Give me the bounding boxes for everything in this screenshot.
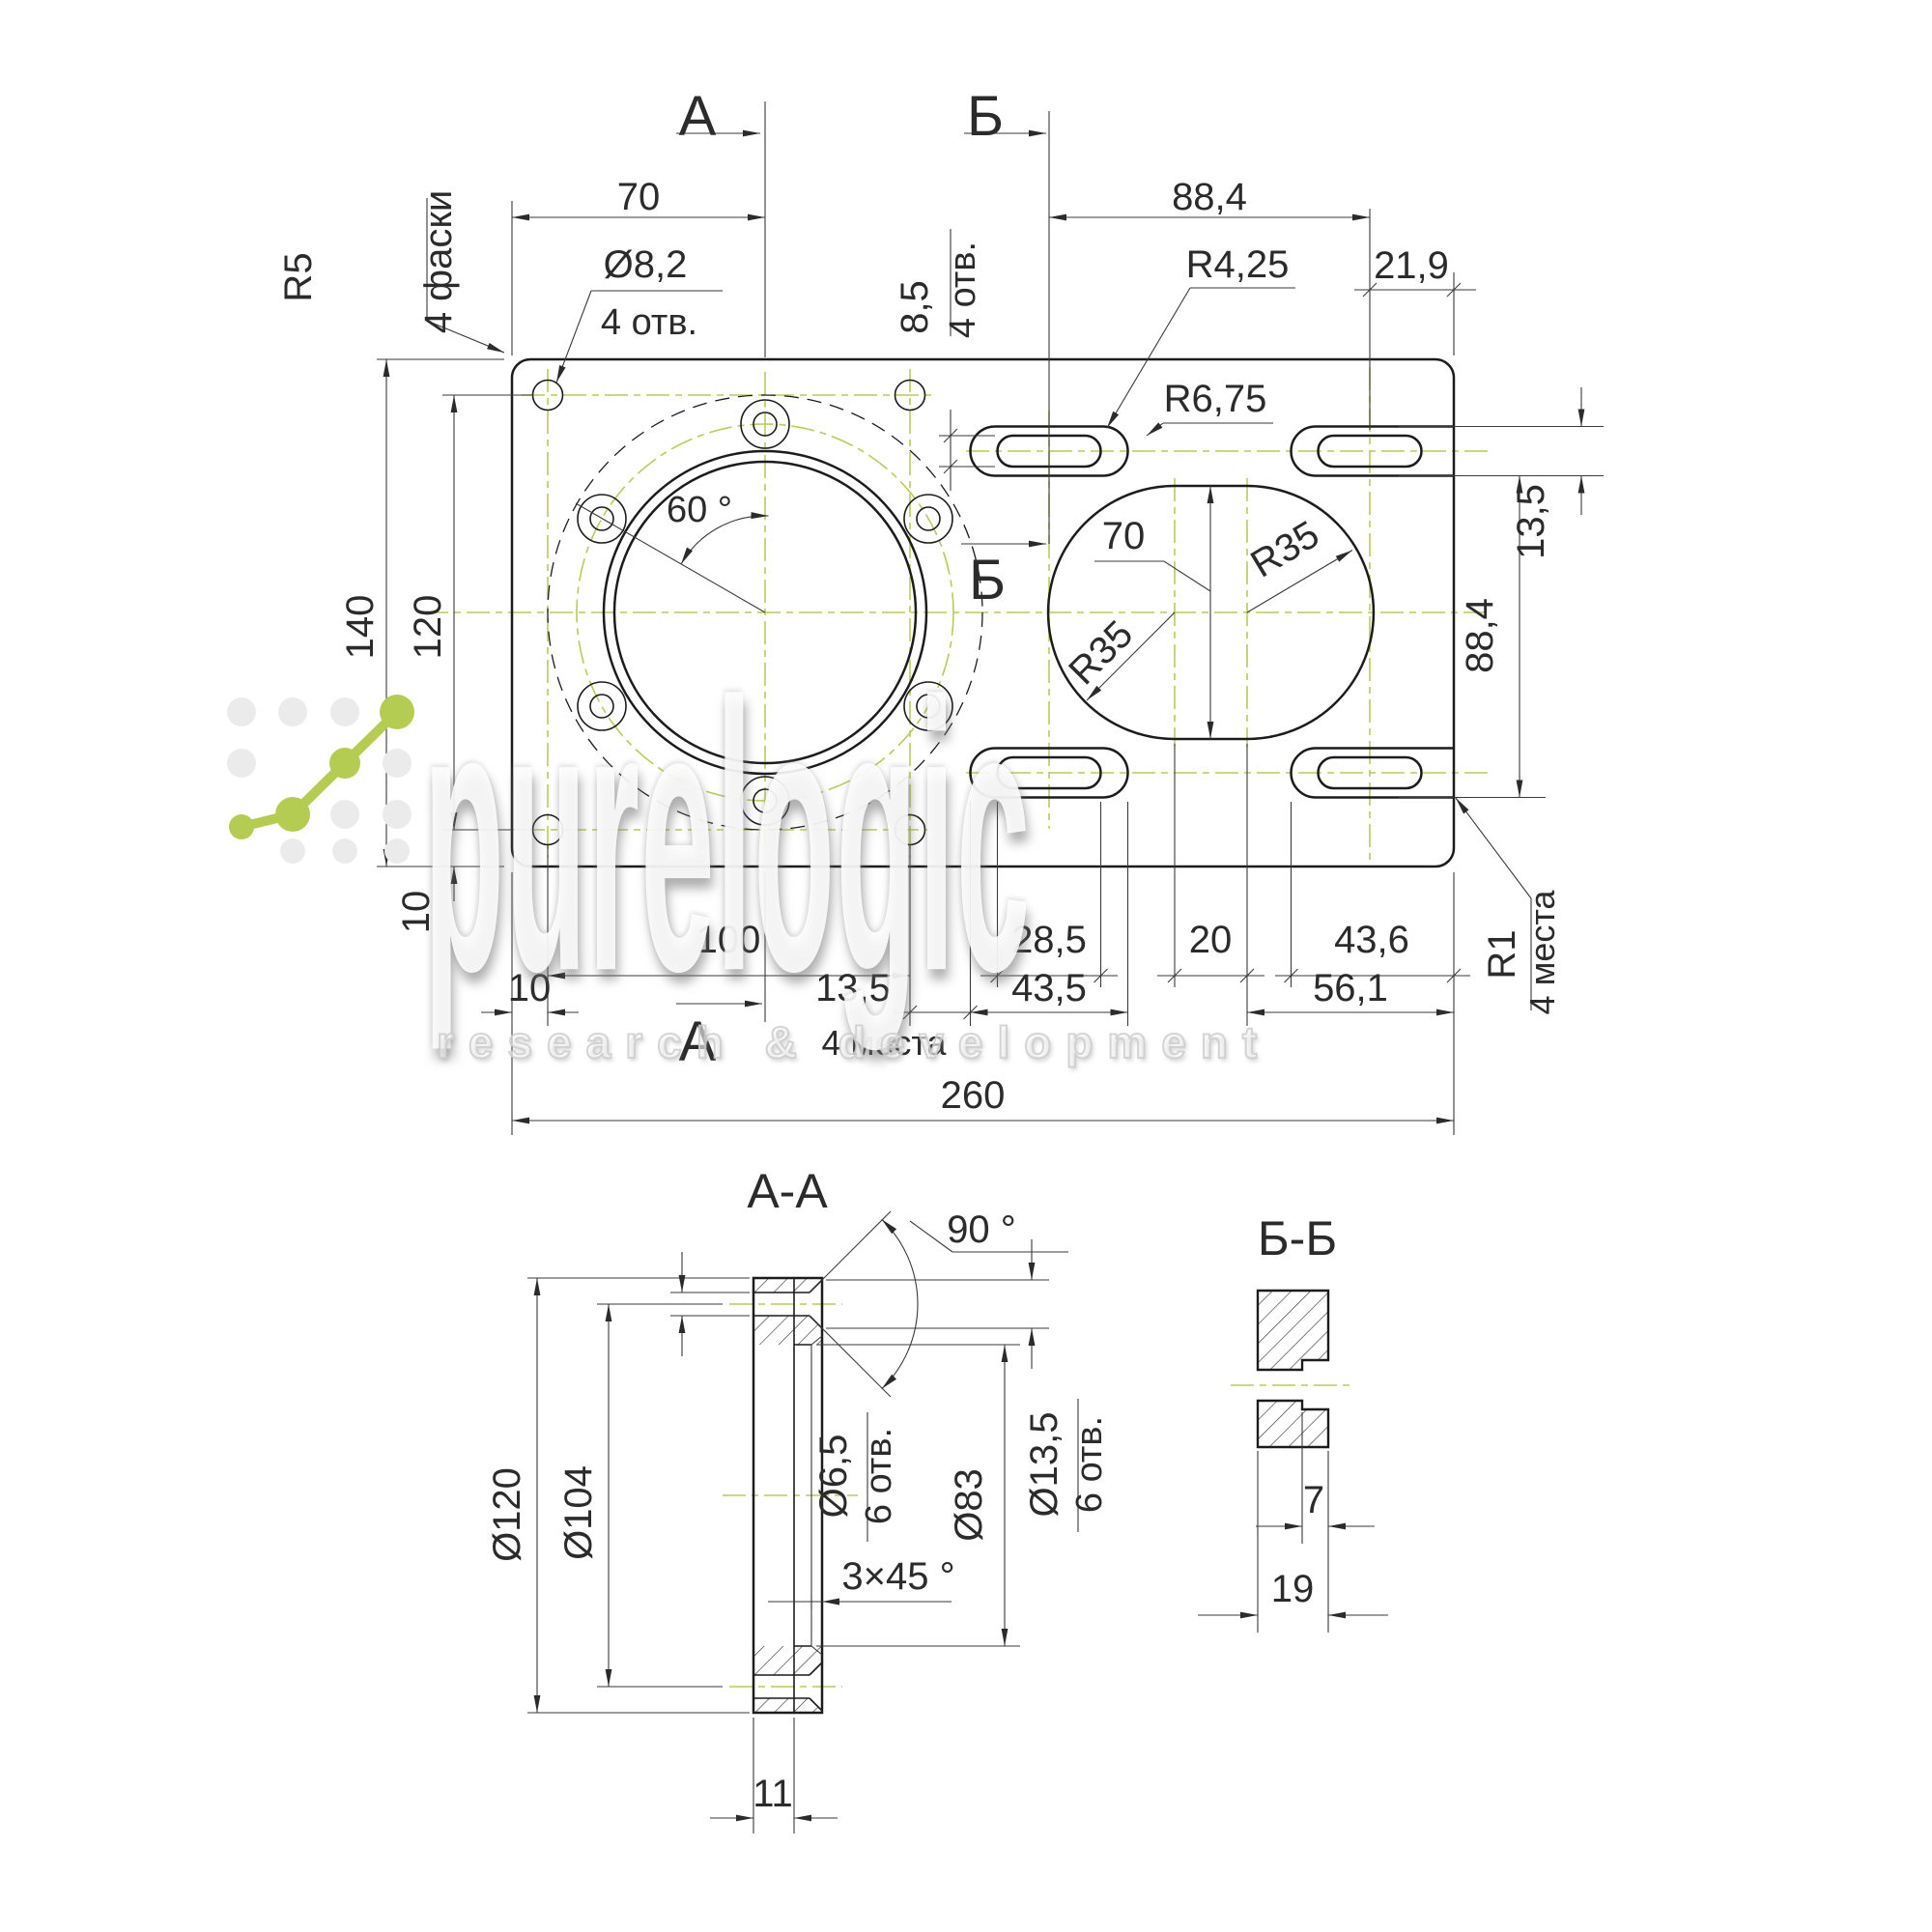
dim-d6-5: Ø6,5 xyxy=(812,1435,855,1519)
dim-88-4-top: 88,4 xyxy=(1172,176,1247,218)
dim-60-deg: 60 ° xyxy=(667,490,732,530)
dim-13-5-bottom: 13,5 xyxy=(815,967,891,1009)
dim-21-9: 21,9 xyxy=(1374,244,1449,287)
note-6-holes-a: 6 отв. xyxy=(859,1428,899,1524)
dim-10-horiz: 10 xyxy=(508,967,552,1009)
note-4-holes: 4 отв. xyxy=(601,302,697,343)
dim-r35-left: R35 xyxy=(1061,612,1141,693)
note-r5: R5 xyxy=(277,252,320,301)
centerlines xyxy=(425,367,1492,860)
section-a-label-bottom: А xyxy=(679,1010,717,1073)
dim-10-vert: 10 xyxy=(395,891,438,934)
section-a-label-top: А xyxy=(679,85,717,148)
dim-d83: Ø83 xyxy=(948,1468,990,1542)
note-4-places-right: 4 места xyxy=(1522,890,1562,1015)
dim-r1: R1 xyxy=(1481,929,1523,979)
note-6-holes-b: 6 отв. xyxy=(1069,1416,1110,1513)
dim-43-5: 43,5 xyxy=(1011,967,1087,1009)
note-4-slot-holes: 4 отв. xyxy=(943,241,983,338)
dim-d13-5: Ø13,5 xyxy=(1023,1412,1065,1518)
dim-d120: Ø120 xyxy=(486,1467,528,1562)
dim-13-5-right: 13,5 xyxy=(1510,484,1552,559)
section-b-label-top: Б xyxy=(967,85,1004,148)
dim-7: 7 xyxy=(1303,1479,1324,1521)
dim-100: 100 xyxy=(696,919,761,961)
dim-88-4-right: 88,4 xyxy=(1459,598,1501,673)
dim-11: 11 xyxy=(753,1773,793,1815)
section-b-label-mid: Б xyxy=(969,549,1006,611)
note-4-chamfers: 4 фаски xyxy=(417,190,460,333)
dim-56-1: 56,1 xyxy=(1313,967,1388,1009)
dim-r6-75: R6,75 xyxy=(1164,378,1267,420)
aa-labels: Ø120 Ø104 Ø6,5 6 отв. Ø13,5 6 отв. Ø83 9… xyxy=(486,1208,1110,1815)
section-bb: Б-Б 7 19 xyxy=(1198,1211,1388,1633)
main-view: А Б А Б 70 88,4 21,9 R5 4 фаски Ø8,2 4 о… xyxy=(277,85,1604,1135)
dim-120: 120 xyxy=(407,595,449,660)
dim-20: 20 xyxy=(1189,919,1233,961)
dim-70-stadium: 70 xyxy=(1102,515,1146,557)
drawing-page: А Б А Б 70 88,4 21,9 R5 4 фаски Ø8,2 4 о… xyxy=(0,0,1932,1932)
section-aa: А-А xyxy=(486,1164,1110,1833)
dim-90-deg: 90 ° xyxy=(947,1208,1016,1251)
note-4-places-bottom: 4 места xyxy=(822,1023,948,1063)
section-bb-title: Б-Б xyxy=(1258,1211,1337,1265)
dim-d8-2: Ø8,2 xyxy=(604,243,688,286)
bb-outline xyxy=(1258,1291,1328,1447)
dim-d104: Ø104 xyxy=(557,1465,600,1560)
section-aa-title: А-А xyxy=(747,1164,828,1218)
dim-43-6: 43,6 xyxy=(1334,919,1409,961)
dim-8-5: 8,5 xyxy=(894,280,936,334)
dim-28-5: 28,5 xyxy=(1011,919,1087,961)
dim-140: 140 xyxy=(339,595,382,660)
dim-260: 260 xyxy=(941,1074,1006,1117)
dim-3x45: 3×45 ° xyxy=(841,1555,954,1598)
dim-r4-25: R4,25 xyxy=(1186,243,1290,286)
dim-r35-right: R35 xyxy=(1244,513,1327,586)
engineering-drawing: А Б А Б 70 88,4 21,9 R5 4 фаски Ø8,2 4 о… xyxy=(0,0,1932,1932)
dim-70-top: 70 xyxy=(617,176,661,218)
dim-19: 19 xyxy=(1271,1568,1315,1610)
